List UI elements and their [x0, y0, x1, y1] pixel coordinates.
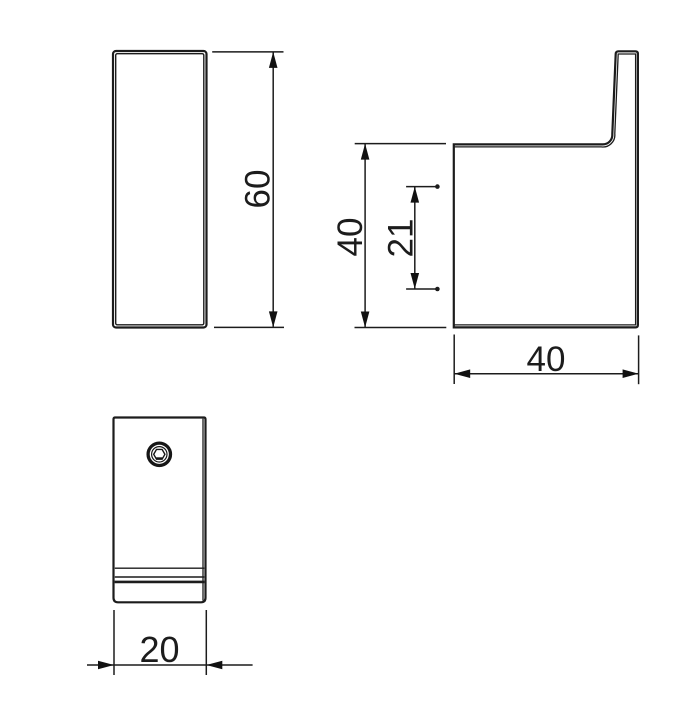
svg-text:60: 60 — [239, 170, 278, 209]
svg-text:40: 40 — [331, 218, 370, 257]
svg-text:20: 20 — [139, 629, 179, 670]
svg-text:40: 40 — [527, 340, 566, 379]
svg-text:21: 21 — [381, 219, 420, 258]
